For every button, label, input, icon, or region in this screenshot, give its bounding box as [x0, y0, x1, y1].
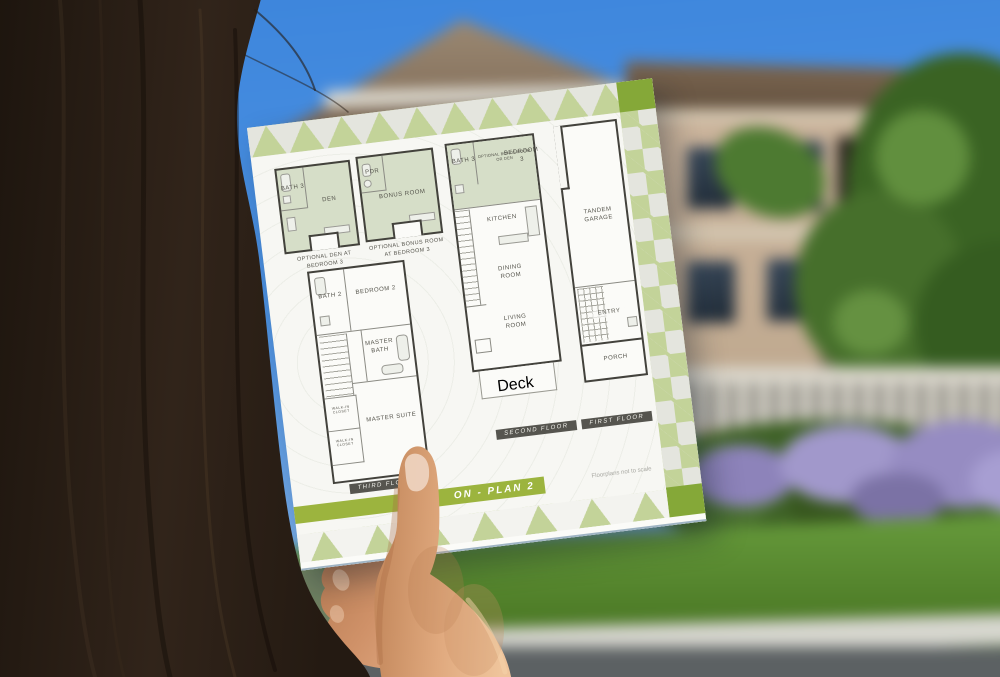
- tree-highlight: [875, 110, 970, 205]
- house-window: [687, 261, 735, 323]
- room-label-closet1: Walk-in Closet: [327, 404, 356, 416]
- floorplan-brochure: ON - Plan 2 Floorplans not to scale Bath…: [247, 78, 706, 570]
- purple-flowers: [850, 473, 945, 525]
- garage-notch: [553, 126, 570, 191]
- plan-option-den: Bath 3 Den: [274, 160, 360, 255]
- room-label-master-bath: Master Bath: [362, 337, 398, 356]
- room-label-master-suite: Master Suite: [365, 411, 418, 425]
- room-label-porch: Porch: [594, 352, 639, 365]
- room-label-deck: Deck: [496, 373, 542, 396]
- label-first-floor: First Floor: [581, 411, 653, 430]
- green-corner-square-top: [616, 78, 655, 112]
- room-label-garage: Tandem Garage: [574, 205, 623, 226]
- stairs: [455, 209, 482, 306]
- room-label-living: Living Room: [494, 312, 538, 332]
- label-second-floor: Second Floor: [496, 420, 577, 440]
- room-label-closet2: Walk-in Closet: [331, 437, 360, 449]
- street: [0, 647, 1000, 677]
- balustrade-rail: [675, 367, 1000, 383]
- room-label-bath3: Bath 3: [280, 183, 305, 193]
- room-label-dining: Dining Room: [490, 263, 532, 283]
- room-label-den: Den: [306, 194, 353, 207]
- plan-option-bonus: Pdr Bonus Room: [355, 148, 443, 243]
- room-label-kitchen: Kitchen: [480, 213, 525, 226]
- purple-flowers: [690, 445, 795, 507]
- room-label-pdr: Pdr: [361, 168, 384, 178]
- plan-third-floor: Bath 2 Bedroom 2 Master Bath Walk-in Clo…: [307, 260, 430, 484]
- tree-highlight: [833, 290, 908, 355]
- plan-second-floor: Bath 3 Bedroom 3 Optional Bonus Room or …: [444, 133, 561, 372]
- room-label-bedroom2: Bedroom 2: [348, 284, 404, 298]
- stairs: [319, 333, 354, 398]
- photo-scene: ON - Plan 2 Floorplans not to scale Bath…: [0, 0, 1000, 677]
